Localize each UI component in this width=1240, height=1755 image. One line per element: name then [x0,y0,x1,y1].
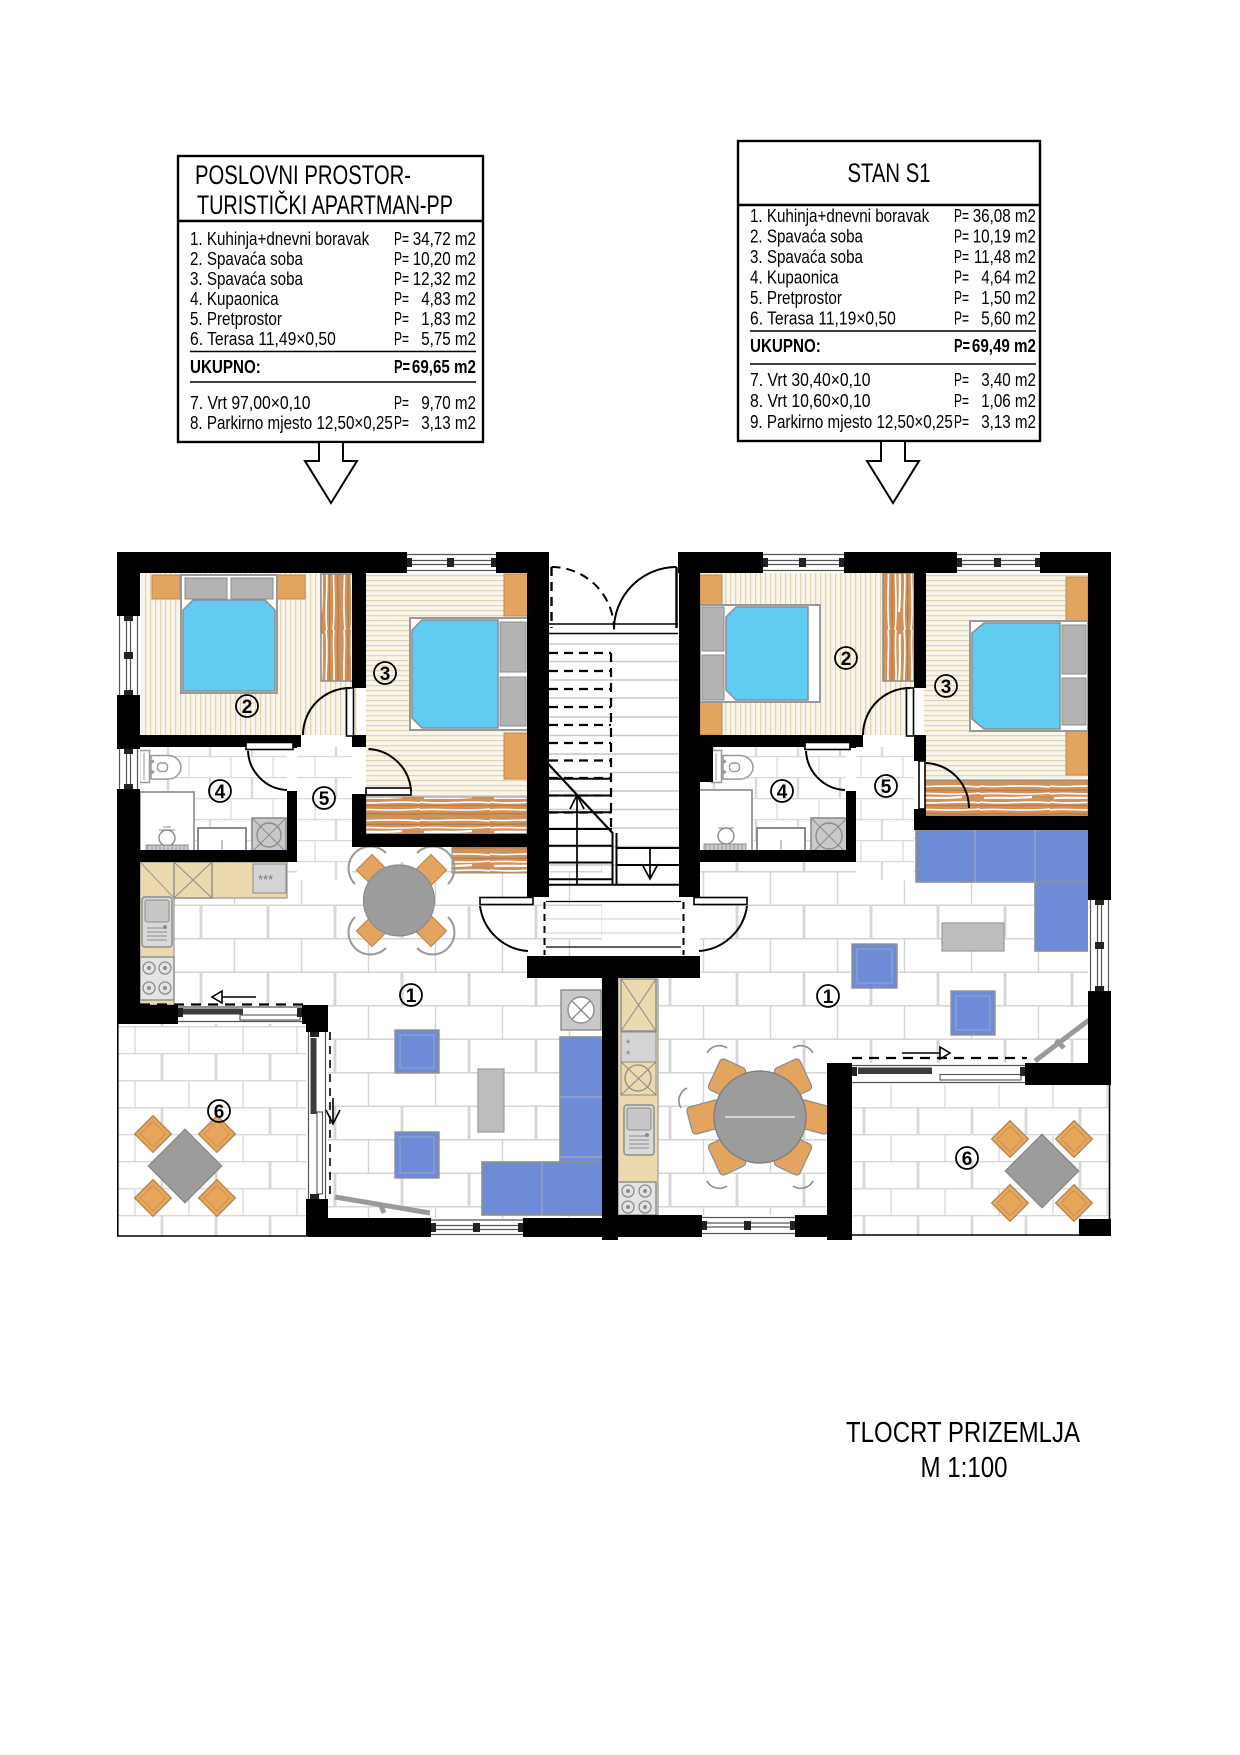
svg-text:1: 1 [823,987,834,1008]
svg-text:3. Spavaća soba: 3. Spavaća soba [190,268,304,289]
svg-text:10,19 m2: 10,19 m2 [973,226,1036,247]
svg-text:8. Parkirno mjesto 12,50×0,25: 8. Parkirno mjesto 12,50×0,25 [190,412,393,433]
svg-text:3,40 m2: 3,40 m2 [981,369,1036,390]
svg-text:P=: P= [954,411,969,432]
svg-text:2: 2 [242,697,253,718]
svg-text:5: 5 [881,777,892,798]
svg-text:P=: P= [394,248,409,269]
svg-text:4. Kupaonica: 4. Kupaonica [750,267,839,288]
svg-text:TLOCRT PRIZEMLJA: TLOCRT PRIZEMLJA [846,1417,1081,1449]
svg-text:4: 4 [777,782,788,803]
svg-text:UKUPNO:: UKUPNO: [750,335,821,356]
svg-text:12,32 m2: 12,32 m2 [413,268,476,289]
svg-text:P=: P= [954,308,969,329]
svg-text:P=: P= [394,328,409,349]
svg-text:5. Pretprostor: 5. Pretprostor [190,308,282,329]
svg-text:P=: P= [394,412,409,433]
svg-text:STAN S1: STAN S1 [848,158,931,188]
svg-text:7. Vrt 30,40×0,10: 7. Vrt 30,40×0,10 [750,369,871,390]
svg-text:2. Spavaća soba: 2. Spavaća soba [190,248,304,269]
svg-text:P=: P= [394,288,409,309]
svg-text:TURISTIČKI APARTMAN-PP: TURISTIČKI APARTMAN-PP [197,189,453,220]
svg-text:P=: P= [954,369,969,390]
svg-text:1. Kuhinja+dnevni boravak: 1. Kuhinja+dnevni boravak [750,205,930,226]
svg-text:1,83 m2: 1,83 m2 [421,308,476,329]
svg-text:3,13 m2: 3,13 m2 [981,411,1036,432]
svg-text:***: *** [258,872,273,887]
svg-text:5,60 m2: 5,60 m2 [981,308,1036,329]
svg-text:P=: P= [954,226,969,247]
svg-text:1: 1 [406,986,417,1007]
svg-text:P=: P= [954,287,969,308]
svg-text:6: 6 [962,1149,973,1170]
svg-text:3. Spavaća soba: 3. Spavaća soba [750,246,864,267]
svg-text:4. Kupaonica: 4. Kupaonica [190,288,279,309]
svg-text:4: 4 [215,782,226,803]
svg-text:POSLOVNI PROSTOR-: POSLOVNI PROSTOR- [195,160,411,190]
svg-text:1,06 m2: 1,06 m2 [981,390,1036,411]
svg-text:3,13 m2: 3,13 m2 [421,412,476,433]
svg-text:5: 5 [319,789,330,810]
svg-text:2: 2 [841,649,852,670]
svg-text:10,20 m2: 10,20 m2 [413,248,476,269]
svg-text:4,64 m2: 4,64 m2 [981,267,1036,288]
svg-text:3: 3 [380,664,391,685]
svg-text:P=: P= [954,267,969,288]
svg-text:P=: P= [394,228,409,249]
svg-text:P=: P= [394,308,409,329]
svg-text:P=: P= [954,390,969,411]
svg-text:8. Vrt 10,60×0,10: 8. Vrt 10,60×0,10 [750,390,871,411]
svg-text:4,83 m2: 4,83 m2 [421,288,476,309]
svg-text:69,49 m2: 69,49 m2 [972,335,1036,356]
svg-text:9. Parkirno mjesto 12,50×0,25: 9. Parkirno mjesto 12,50×0,25 [750,411,953,432]
svg-text:6. Terasa 11,49×0,50: 6. Terasa 11,49×0,50 [190,328,336,349]
svg-text:9,70 m2: 9,70 m2 [421,392,476,413]
svg-text:UKUPNO:: UKUPNO: [190,356,261,377]
svg-text:3: 3 [941,677,952,698]
svg-text:5,75 m2: 5,75 m2 [421,328,476,349]
svg-text:1,50 m2: 1,50 m2 [981,287,1036,308]
svg-text:M 1:100: M 1:100 [921,1452,1008,1484]
svg-text:P=: P= [394,356,410,377]
svg-text:6: 6 [214,1102,225,1123]
svg-text:P=: P= [394,268,409,289]
svg-text:7. Vrt 97,00×0,10: 7. Vrt 97,00×0,10 [190,392,311,413]
svg-text:1. Kuhinja+dnevni boravak: 1. Kuhinja+dnevni boravak [190,228,370,249]
svg-text:5. Pretprostor: 5. Pretprostor [750,287,842,308]
svg-text:69,65 m2: 69,65 m2 [412,356,476,377]
svg-text:P=: P= [954,246,969,267]
svg-text:34,72 m2: 34,72 m2 [413,228,476,249]
svg-text:2. Spavaća soba: 2. Spavaća soba [750,226,864,247]
svg-text:P=: P= [954,335,970,356]
svg-text:11,48 m2: 11,48 m2 [974,246,1036,267]
svg-text:36,08 m2: 36,08 m2 [973,205,1036,226]
svg-text:6. Terasa 11,19×0,50: 6. Terasa 11,19×0,50 [750,308,896,329]
svg-text:P=: P= [394,392,409,413]
svg-text:P=: P= [954,205,969,226]
svg-text:*: * [626,1049,631,1061]
